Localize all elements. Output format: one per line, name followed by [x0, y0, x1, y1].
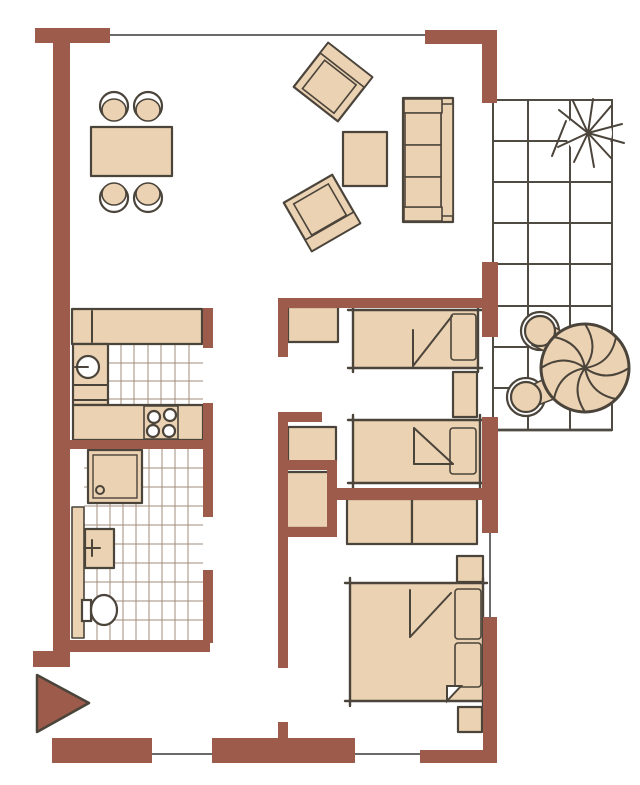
nightstand	[453, 372, 477, 417]
single-bed-2	[348, 415, 484, 488]
dining-chair	[100, 183, 128, 212]
shower	[88, 450, 142, 503]
single-bed-1	[348, 305, 482, 372]
dresser	[288, 427, 336, 462]
floor-plan	[0, 0, 640, 785]
dining-chair	[134, 92, 162, 121]
bedroom-master	[345, 499, 487, 732]
double-bed	[345, 578, 487, 706]
dining-chair	[100, 92, 128, 121]
pillow	[455, 589, 481, 639]
pillow	[451, 314, 476, 360]
dining-table	[91, 127, 172, 176]
balcony-round-table	[541, 324, 629, 412]
coffee-table	[343, 132, 387, 186]
stove	[144, 406, 178, 439]
sofa	[403, 98, 453, 222]
nightstand	[457, 556, 483, 582]
toilet	[82, 595, 117, 625]
nightstand	[458, 707, 482, 732]
closet-niche	[283, 472, 332, 528]
dining-chair	[134, 183, 162, 212]
washbasin	[84, 529, 114, 568]
pillow	[455, 643, 481, 687]
wardrobe	[347, 499, 477, 544]
kitchen-counter-bottom	[73, 405, 203, 440]
pillow	[450, 428, 476, 474]
dresser	[288, 307, 338, 342]
